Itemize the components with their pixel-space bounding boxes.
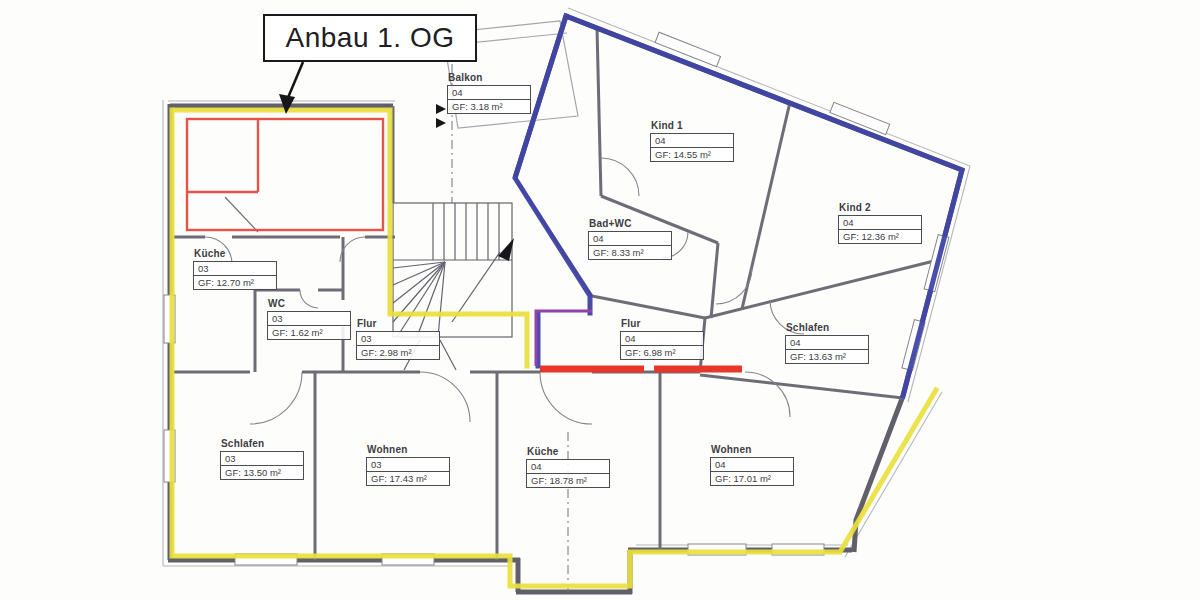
room-label-wohnen-04: Wohnen 04 GF: 17.01 m² bbox=[710, 444, 794, 486]
room-label-flur-04: Flur 04 GF: 6.98 m² bbox=[620, 318, 704, 360]
room-unit: 04 bbox=[448, 86, 530, 100]
room-area: GF: 3.18 m² bbox=[448, 100, 530, 113]
room-unit: 04 bbox=[711, 458, 793, 472]
room-area: GF: 8.33 m² bbox=[589, 246, 671, 259]
room-info-table: 03 GF: 2.98 m² bbox=[356, 331, 440, 360]
room-info-table: 03 GF: 17.43 m² bbox=[366, 457, 450, 486]
room-unit: 04 bbox=[786, 336, 868, 350]
room-unit: 03 bbox=[357, 332, 439, 346]
plan-title: Anbau 1. OG bbox=[286, 22, 455, 54]
room-unit: 03 bbox=[268, 312, 350, 326]
room-label-kind-2: Kind 2 04 GF: 12.36 m² bbox=[838, 202, 922, 244]
room-info-table: 04 GF: 17.01 m² bbox=[710, 457, 794, 486]
room-label-wohnen-03: Wohnen 03 GF: 17.43 m² bbox=[366, 444, 450, 486]
room-area: GF: 13.50 m² bbox=[221, 466, 303, 479]
floor-plan-drawing bbox=[0, 0, 1200, 600]
room-label-schlafen-03: Schlafen 03 GF: 13.50 m² bbox=[220, 438, 304, 480]
room-name: Balkon bbox=[448, 72, 531, 83]
room-label-wc-03: WC 03 GF: 1.62 m² bbox=[267, 298, 351, 340]
room-name: Küche bbox=[194, 248, 277, 259]
room-name: Wohnen bbox=[367, 444, 450, 455]
room-label-kueche-04: Küche 04 GF: 18.78 m² bbox=[526, 446, 610, 488]
purple-wall-marking bbox=[536, 311, 592, 366]
room-unit: 03 bbox=[367, 458, 449, 472]
room-unit: 04 bbox=[621, 332, 703, 346]
section-markers bbox=[436, 104, 446, 128]
room-name: WC bbox=[268, 298, 351, 309]
room-unit: 04 bbox=[651, 134, 733, 148]
room-area: GF: 17.43 m² bbox=[367, 472, 449, 485]
room-info-table: 03 GF: 13.50 m² bbox=[220, 451, 304, 480]
room-unit: 04 bbox=[527, 460, 609, 474]
plan-title-box: Anbau 1. OG bbox=[263, 14, 477, 62]
room-unit: 03 bbox=[194, 262, 276, 276]
room-area: GF: 13.63 m² bbox=[786, 350, 868, 363]
room-info-table: 03 GF: 12.70 m² bbox=[193, 261, 277, 290]
room-area: GF: 17.01 m² bbox=[711, 472, 793, 485]
room-unit: 04 bbox=[589, 232, 671, 246]
room-info-table: 04 GF: 13.63 m² bbox=[785, 335, 869, 364]
room-unit: 04 bbox=[839, 216, 921, 230]
room-info-table: 04 GF: 12.36 m² bbox=[838, 215, 922, 244]
room-area: GF: 1.62 m² bbox=[268, 326, 350, 339]
room-name: Schlafen bbox=[786, 322, 869, 333]
floor-plan-page: Anbau 1. OG Balkon 04 GF: 3.18 m² Kind 1… bbox=[0, 0, 1200, 600]
room-info-table: 03 GF: 1.62 m² bbox=[267, 311, 351, 340]
room-area: GF: 6.98 m² bbox=[621, 346, 703, 359]
room-name: Bad+WC bbox=[589, 218, 672, 229]
room-area: GF: 2.98 m² bbox=[357, 346, 439, 359]
room-name: Schlafen bbox=[221, 438, 304, 449]
room-info-table: 04 GF: 18.78 m² bbox=[526, 459, 610, 488]
room-label-balkon: Balkon 04 GF: 3.18 m² bbox=[447, 72, 531, 114]
room-name: Flur bbox=[621, 318, 704, 329]
room-name: Kind 2 bbox=[839, 202, 922, 213]
room-label-kind-1: Kind 1 04 GF: 14.55 m² bbox=[650, 120, 734, 162]
room-info-table: 04 GF: 6.98 m² bbox=[620, 331, 704, 360]
room-name: Flur bbox=[357, 318, 440, 329]
room-info-table: 04 GF: 3.18 m² bbox=[447, 85, 531, 114]
room-label-kueche-03: Küche 03 GF: 12.70 m² bbox=[193, 248, 277, 290]
room-name: Wohnen bbox=[711, 444, 794, 455]
room-info-table: 04 GF: 8.33 m² bbox=[588, 231, 672, 260]
room-name: Kind 1 bbox=[651, 120, 734, 131]
anbau-new-walls-red bbox=[187, 119, 383, 230]
room-area: GF: 14.55 m² bbox=[651, 148, 733, 161]
room-unit: 03 bbox=[221, 452, 303, 466]
room-label-bad-wc: Bad+WC 04 GF: 8.33 m² bbox=[588, 218, 672, 260]
section-line bbox=[452, 64, 568, 592]
room-name: Küche bbox=[527, 446, 610, 457]
room-info-table: 04 GF: 14.55 m² bbox=[650, 133, 734, 162]
room-area: GF: 12.70 m² bbox=[194, 276, 276, 289]
room-label-flur-03: Flur 03 GF: 2.98 m² bbox=[356, 318, 440, 360]
room-area: GF: 18.78 m² bbox=[527, 474, 609, 487]
room-label-schlafen-04: Schlafen 04 GF: 13.63 m² bbox=[785, 322, 869, 364]
room-area: GF: 12.36 m² bbox=[839, 230, 921, 243]
